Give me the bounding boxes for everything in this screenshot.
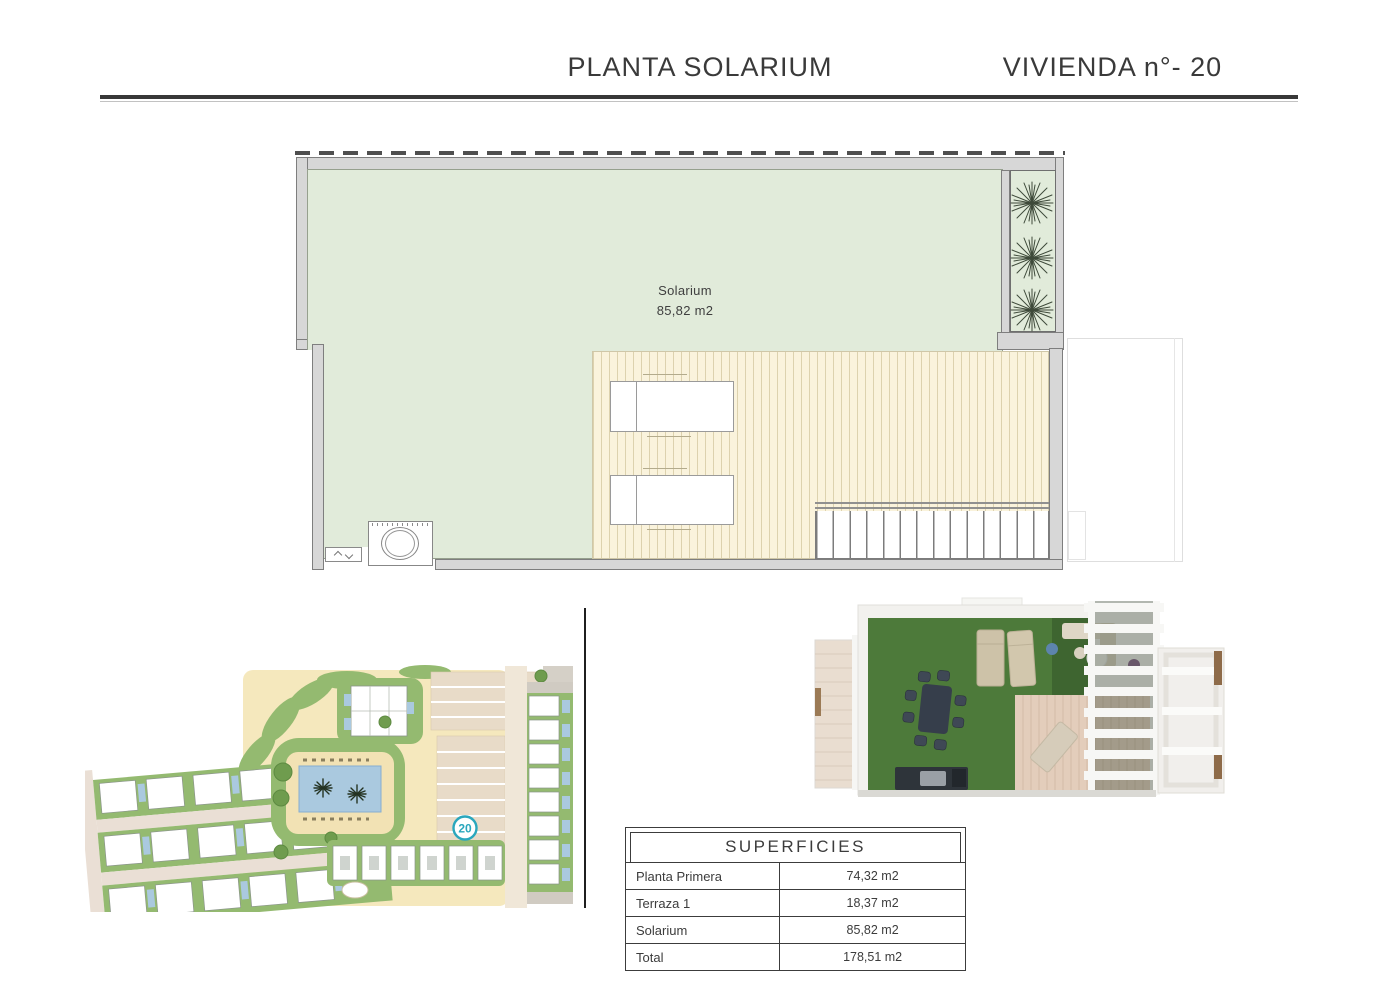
jacuzzi-ring-inner	[385, 530, 415, 557]
plan-sheet-page: PLANTA SOLARIUM VIVIENDA n°- 20	[0, 0, 1400, 990]
table-row: Total 178,51 m2	[626, 944, 965, 970]
unit-20-badge-label: 20	[458, 822, 472, 836]
room-label: Solarium 85,82 m2	[620, 281, 750, 321]
plant-icon	[1011, 182, 1053, 224]
stair-railing-line	[815, 507, 1049, 509]
planter-plants-svg	[1010, 170, 1056, 332]
row-label: Planta Primera	[626, 863, 780, 889]
sun-lounger-2	[610, 475, 734, 525]
surfaces-table-title: SUPERFICIES	[630, 832, 961, 862]
solarium-floor-plan: Solarium 85,82 m2	[295, 148, 1195, 578]
lounger-mark	[647, 529, 691, 530]
table-row: Solarium 85,82 m2	[626, 917, 965, 944]
lounger-headrest-line	[636, 476, 637, 524]
site-plan-svg: 20	[85, 662, 575, 912]
vent-mark-icon	[334, 551, 342, 559]
room-area: 85,82 m2	[620, 301, 750, 321]
lounger-mark	[643, 468, 687, 469]
lounger-mark	[647, 436, 691, 437]
site-pool-area	[271, 738, 405, 846]
row-label: Total	[626, 944, 780, 970]
stair-railing-line	[815, 502, 1049, 504]
header-rule-shadow	[100, 101, 1298, 102]
vent-box	[325, 547, 362, 562]
solarium-3d-render	[812, 593, 1227, 805]
render-bottom-shadow	[858, 790, 1156, 797]
table-row: Planta Primera 74,32 m2	[626, 863, 965, 890]
plan-wall-bottom	[435, 559, 1063, 570]
lounger-mark	[643, 374, 687, 375]
sun-lounger-1	[610, 381, 734, 432]
neighbor-terrace-line	[1174, 338, 1175, 562]
lounger-headrest-line	[636, 382, 637, 431]
row-label: Solarium	[626, 917, 780, 943]
palm-icon	[348, 785, 366, 803]
row-value: 18,37 m2	[780, 896, 965, 910]
vent-mark-icon	[345, 551, 353, 559]
page-title-right: VIVIENDA n°- 20	[985, 52, 1240, 83]
section-divider	[584, 608, 586, 908]
page-title-left: PLANTA SOLARIUM	[555, 52, 845, 83]
planter-wall-left	[1001, 170, 1010, 334]
surfaces-table-rows: Planta Primera 74,32 m2 Terraza 1 18,37 …	[626, 862, 965, 970]
planter-wall-right	[1055, 157, 1064, 336]
plan-step-cutout	[295, 350, 312, 572]
room-name: Solarium	[620, 281, 750, 301]
plan-wall-right-lower	[1049, 348, 1063, 570]
plant-icon	[1011, 237, 1053, 279]
site-right-column	[505, 666, 573, 908]
row-value: 178,51 m2	[780, 950, 965, 964]
header-rule	[100, 95, 1298, 99]
unit-20-badge: 20	[454, 817, 477, 840]
jacuzzi-hatch	[372, 523, 429, 526]
staircase	[815, 511, 1049, 559]
row-label: Terraza 1	[626, 890, 780, 916]
neighbor-terrace-box	[1068, 511, 1086, 560]
surfaces-table: SUPERFICIES Planta Primera 74,32 m2 Terr…	[625, 827, 966, 971]
render-right-wing	[1158, 648, 1224, 793]
table-row: Terraza 1 18,37 m2	[626, 890, 965, 917]
plant-icon	[1011, 289, 1053, 331]
plan-dashed-boundary	[295, 151, 1065, 155]
site-top-block	[337, 678, 423, 744]
row-value: 85,82 m2	[780, 923, 965, 937]
palm-icon	[314, 779, 332, 797]
plan-wall-left-lower	[312, 344, 324, 570]
row-value: 74,32 m2	[780, 869, 965, 883]
